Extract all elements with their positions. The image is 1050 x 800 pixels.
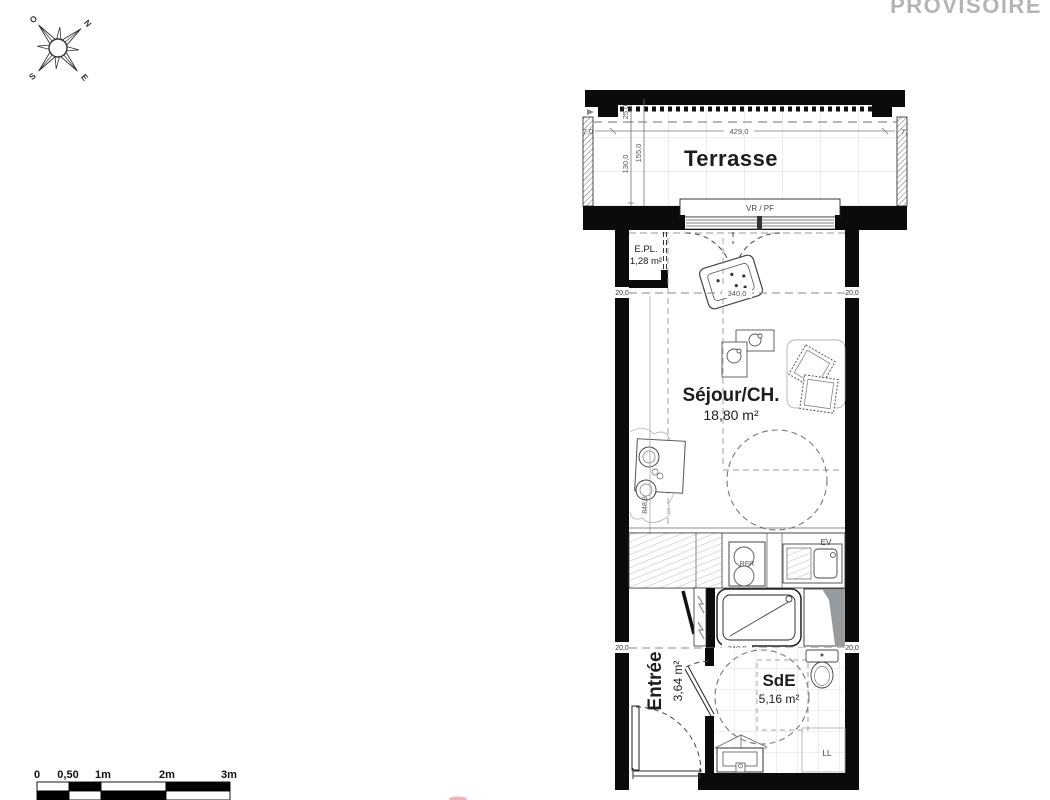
svg-text:20,0: 20,0 (615, 290, 629, 297)
sejour-label: Séjour/CH. (682, 385, 779, 406)
kitchenette: RFR EV (629, 528, 845, 588)
vanity-basin (717, 748, 763, 772)
svg-text:20,0: 20,0 (845, 645, 859, 652)
cropped-logo-mark (449, 797, 467, 800)
dim-terrace-left: 7,0 (583, 127, 593, 136)
sde-label: SdE (762, 671, 795, 690)
dim-terrace-depth-a: 25,0 (621, 105, 630, 120)
dining-set (630, 428, 685, 522)
french-window (680, 215, 840, 230)
sde-zone: SdE 5,16 m² LL (685, 648, 845, 773)
fridge-label: RFR (740, 561, 754, 568)
dim-terrace-width: 429,0 (730, 127, 749, 136)
floor-cushions (787, 340, 845, 413)
shower-row (683, 588, 844, 648)
sink-label: EV (821, 538, 832, 547)
dim-terrace-depth-b: 130,0 (621, 155, 630, 174)
shower-tray (717, 589, 801, 646)
compass-west-label: O (28, 13, 40, 25)
scale-tick-050: 0,50 (57, 769, 78, 781)
dim-terrace-depth-c: 155,0 (634, 144, 643, 163)
scale-tick-3m: 3m (221, 769, 237, 781)
scale-tick-0: 0 (34, 769, 40, 781)
window-type-label: VR / PF (746, 204, 774, 213)
scale-tick-1m: 1m (95, 769, 111, 781)
terrace-parapet-wall (585, 90, 905, 105)
dim-sejour-length: 848,9 (642, 496, 649, 514)
terrace-label: Terrasse (684, 146, 778, 171)
side-table (722, 330, 774, 377)
kitchen-sink: EV (783, 538, 842, 583)
epl-label: E.PL. (634, 244, 657, 255)
fridge-hob: RFR (729, 542, 765, 586)
compass-south-label: S (27, 70, 38, 82)
clearance-circle (727, 430, 827, 530)
epl-area: 1,28 m² (630, 256, 662, 267)
wall-right (845, 230, 859, 790)
compass-rose-icon: O N S E (27, 13, 94, 83)
epl-closet: E.PL. 1,28 m² (629, 232, 668, 288)
floor-plan-page: PROVISOIRE (0, 0, 1050, 800)
svg-text:340,0: 340,0 (728, 289, 747, 298)
svg-text:20,0: 20,0 (615, 645, 629, 652)
sde-door (685, 661, 714, 716)
entree-area: 3,64 m² (671, 661, 685, 702)
sde-area: 5,16 m² (759, 692, 800, 706)
bed-headboard (698, 254, 764, 311)
counter-worktop (629, 533, 722, 588)
floor-plan-drawing: O N S E (0, 0, 1050, 800)
technical-duct (804, 589, 844, 646)
terrace-zone: 7,0 429,0 7, 25,0 130,0 155,0 Terrasse V… (583, 90, 907, 230)
dim-terrace-right: 7, (901, 127, 907, 136)
svg-text:20,0: 20,0 (845, 290, 859, 297)
wall-bottom (698, 773, 859, 790)
sejour-area: 18,80 m² (703, 407, 759, 423)
compass-east-label: E (79, 72, 91, 83)
entree-label: Entrée (645, 651, 666, 710)
entrance-door (632, 706, 701, 779)
scale-bar: 0 0,50 1m 2m 3m (34, 769, 237, 800)
compass-north-label: N (82, 18, 94, 29)
washer-label: LL (823, 749, 832, 758)
wall-left (615, 230, 629, 790)
sejour-width-dimension: 340,0 20,0 20,0 (615, 287, 859, 298)
scale-tick-2m: 2m (159, 769, 175, 781)
electrical-closet (694, 588, 706, 646)
corridor-door-leaf (683, 591, 694, 634)
